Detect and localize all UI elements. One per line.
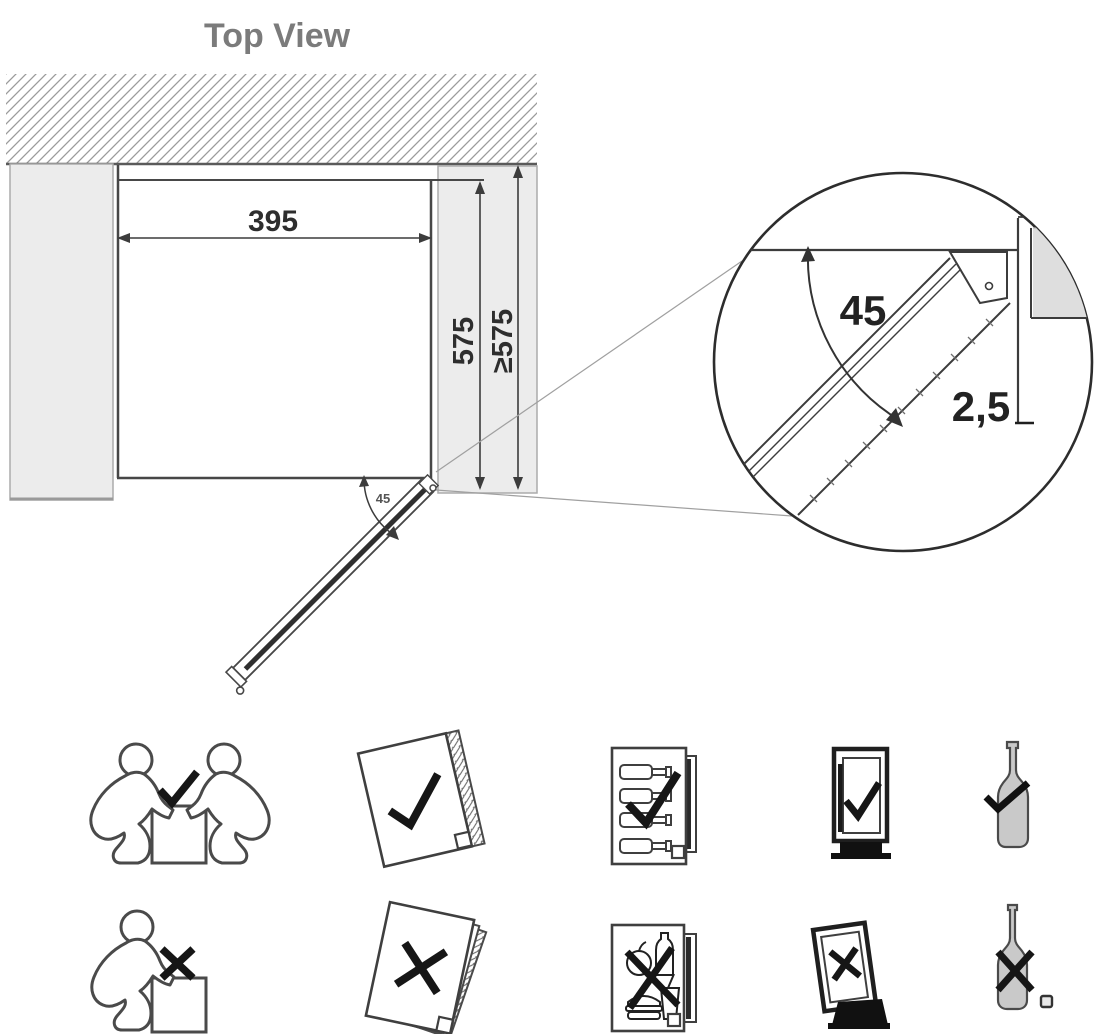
wall-hatch-band [6,74,537,164]
manual-check-icon [358,730,484,866]
cork-square [1041,996,1052,1007]
detail-gap-label: 2,5 [952,383,1010,430]
food-booklet-cross-icon [612,925,696,1031]
allowed-icons-row [91,730,1028,866]
niche-depth-label: 575 [448,317,480,365]
wine-bottle-check-icon [986,742,1028,847]
dimension-niche-width: 395 [117,205,432,243]
two-person-lift-check-icon [91,744,269,863]
not-allowed-icons-row [92,902,1052,1034]
detail-circle: 45 2,5 [712,173,1100,551]
niche-width-label: 395 [248,205,298,238]
check-mark [160,772,197,803]
cross-mark [162,949,193,978]
wine-list-booklet-check-icon [612,748,696,864]
one-person-lift-cross-icon [92,911,206,1032]
side-wall-section [1033,228,1098,318]
manual-cross-icon [365,902,488,1034]
open-door: 45 [221,473,444,696]
niche-outline [117,165,484,490]
detail-angle-label: 45 [840,287,887,334]
left-cabinet-block [10,164,113,500]
tilted-cabinet-cross-icon [813,923,890,1029]
hinge-pin [430,485,436,491]
installation-diagram: Top View 395 575 ≥575 [0,0,1107,1034]
upright-cabinet-check-icon [831,749,891,859]
page-title: Top View [204,17,351,55]
door-angle-label: 45 [376,491,390,506]
wine-bottle-cross-icon [998,905,1052,1009]
min-depth-label: ≥575 [487,309,519,373]
